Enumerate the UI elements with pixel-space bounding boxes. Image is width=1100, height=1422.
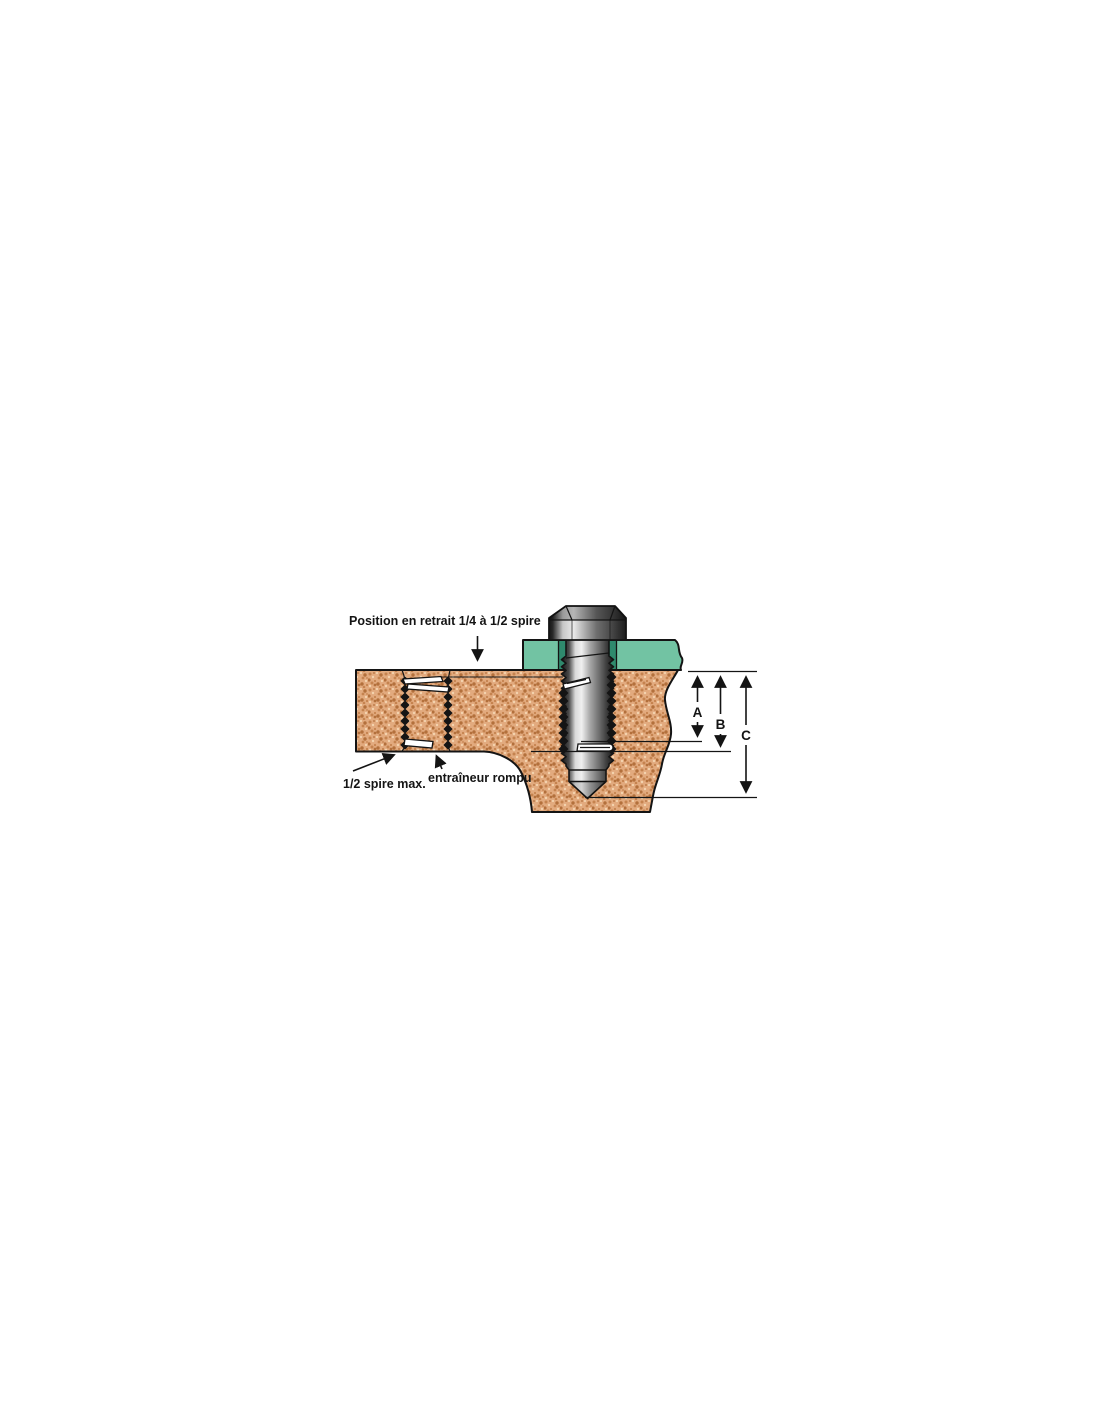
dimension-b-label: B	[716, 717, 726, 732]
arrow-half-coil-max	[353, 755, 394, 771]
dimension-c: C	[741, 677, 751, 792]
label-half-coil-max: 1/2 spire max.	[343, 777, 426, 791]
arrow-broken-tang	[437, 756, 443, 769]
page: A B C Position en retrait 1/4 à 1/2 spir…	[0, 0, 1100, 1422]
technical-diagram: A B C Position en retrait 1/4 à 1/2 spir…	[0, 0, 1100, 1422]
dimension-a: A	[693, 677, 703, 736]
dimension-c-label: C	[741, 728, 751, 743]
label-broken-tang: entraîneur rompu	[428, 771, 532, 785]
dimension-a-label: A	[693, 705, 703, 720]
dimension-b: B	[716, 677, 726, 746]
bolt-shank	[562, 639, 614, 799]
label-position-retrait: Position en retrait 1/4 à 1/2 spire	[349, 614, 541, 628]
bolt-head	[549, 606, 626, 640]
bolt-bottom-tang	[577, 744, 613, 751]
